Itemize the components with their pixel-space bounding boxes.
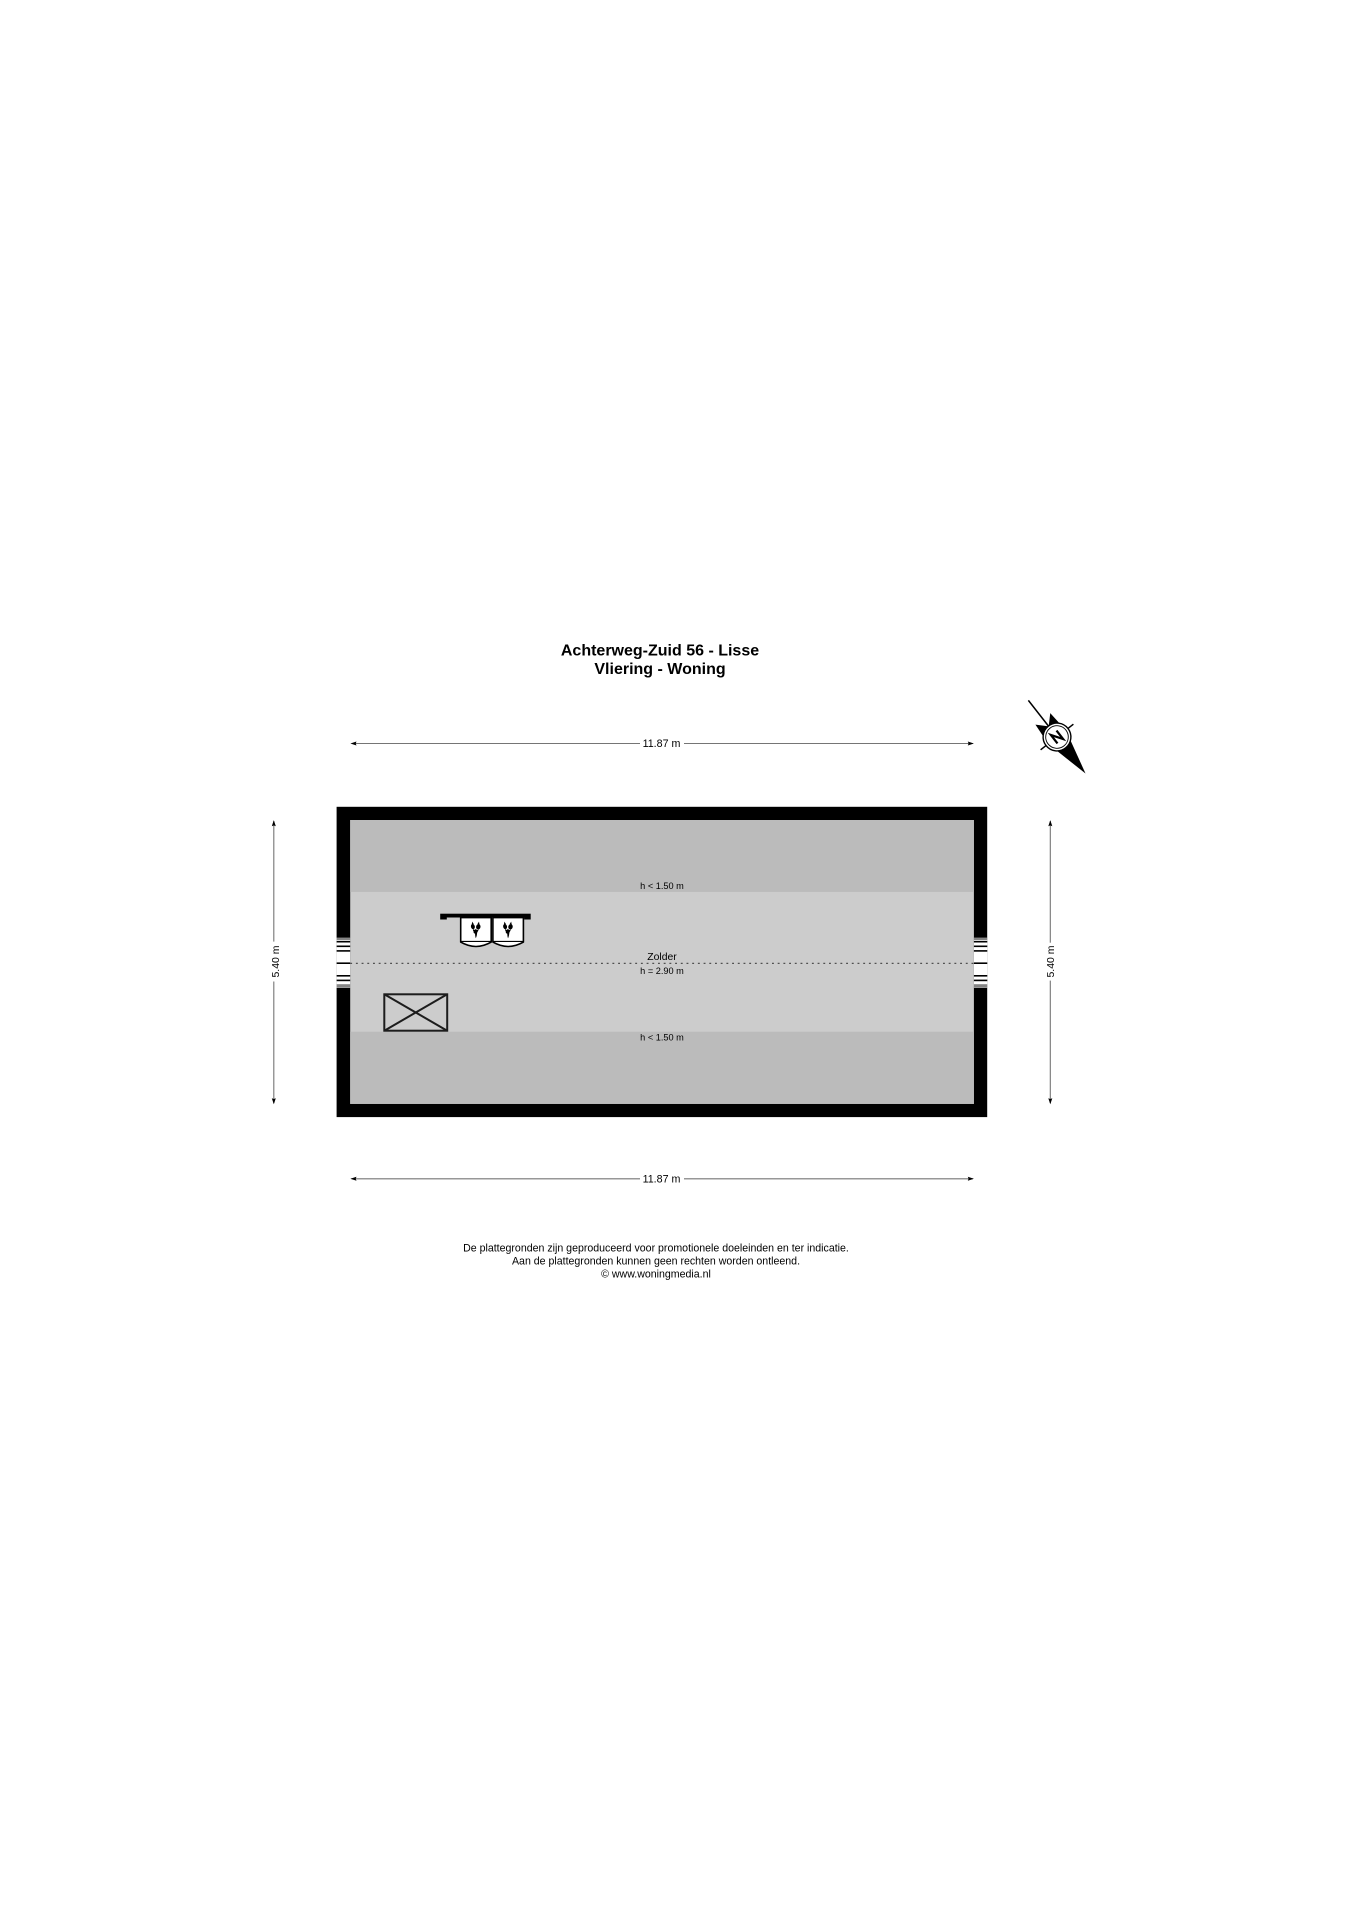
svg-text:11.87 m: 11.87 m <box>643 1174 681 1186</box>
svg-text:Aan de plattegronden kunnen ge: Aan de plattegronden kunnen geen rechten… <box>512 1255 800 1267</box>
svg-text:De plattegronden zijn geproduc: De plattegronden zijn geproduceerd voor … <box>463 1242 849 1254</box>
svg-text:Zolder: Zolder <box>647 952 677 963</box>
svg-text:© www.woningmedia.nl: © www.woningmedia.nl <box>601 1268 711 1280</box>
svg-text:5.40 m: 5.40 m <box>1045 945 1057 977</box>
svg-text:Vliering - Woning: Vliering - Woning <box>594 661 725 678</box>
svg-text:11.87 m: 11.87 m <box>643 738 681 750</box>
svg-text:h < 1.50 m: h < 1.50 m <box>640 1033 684 1043</box>
svg-text:h = 2.90 m: h = 2.90 m <box>640 966 684 976</box>
svg-text:h < 1.50 m: h < 1.50 m <box>640 881 684 891</box>
svg-text:5.40 m: 5.40 m <box>270 945 282 977</box>
svg-text:Achterweg-Zuid 56 - Lisse: Achterweg-Zuid 56 - Lisse <box>561 642 759 659</box>
